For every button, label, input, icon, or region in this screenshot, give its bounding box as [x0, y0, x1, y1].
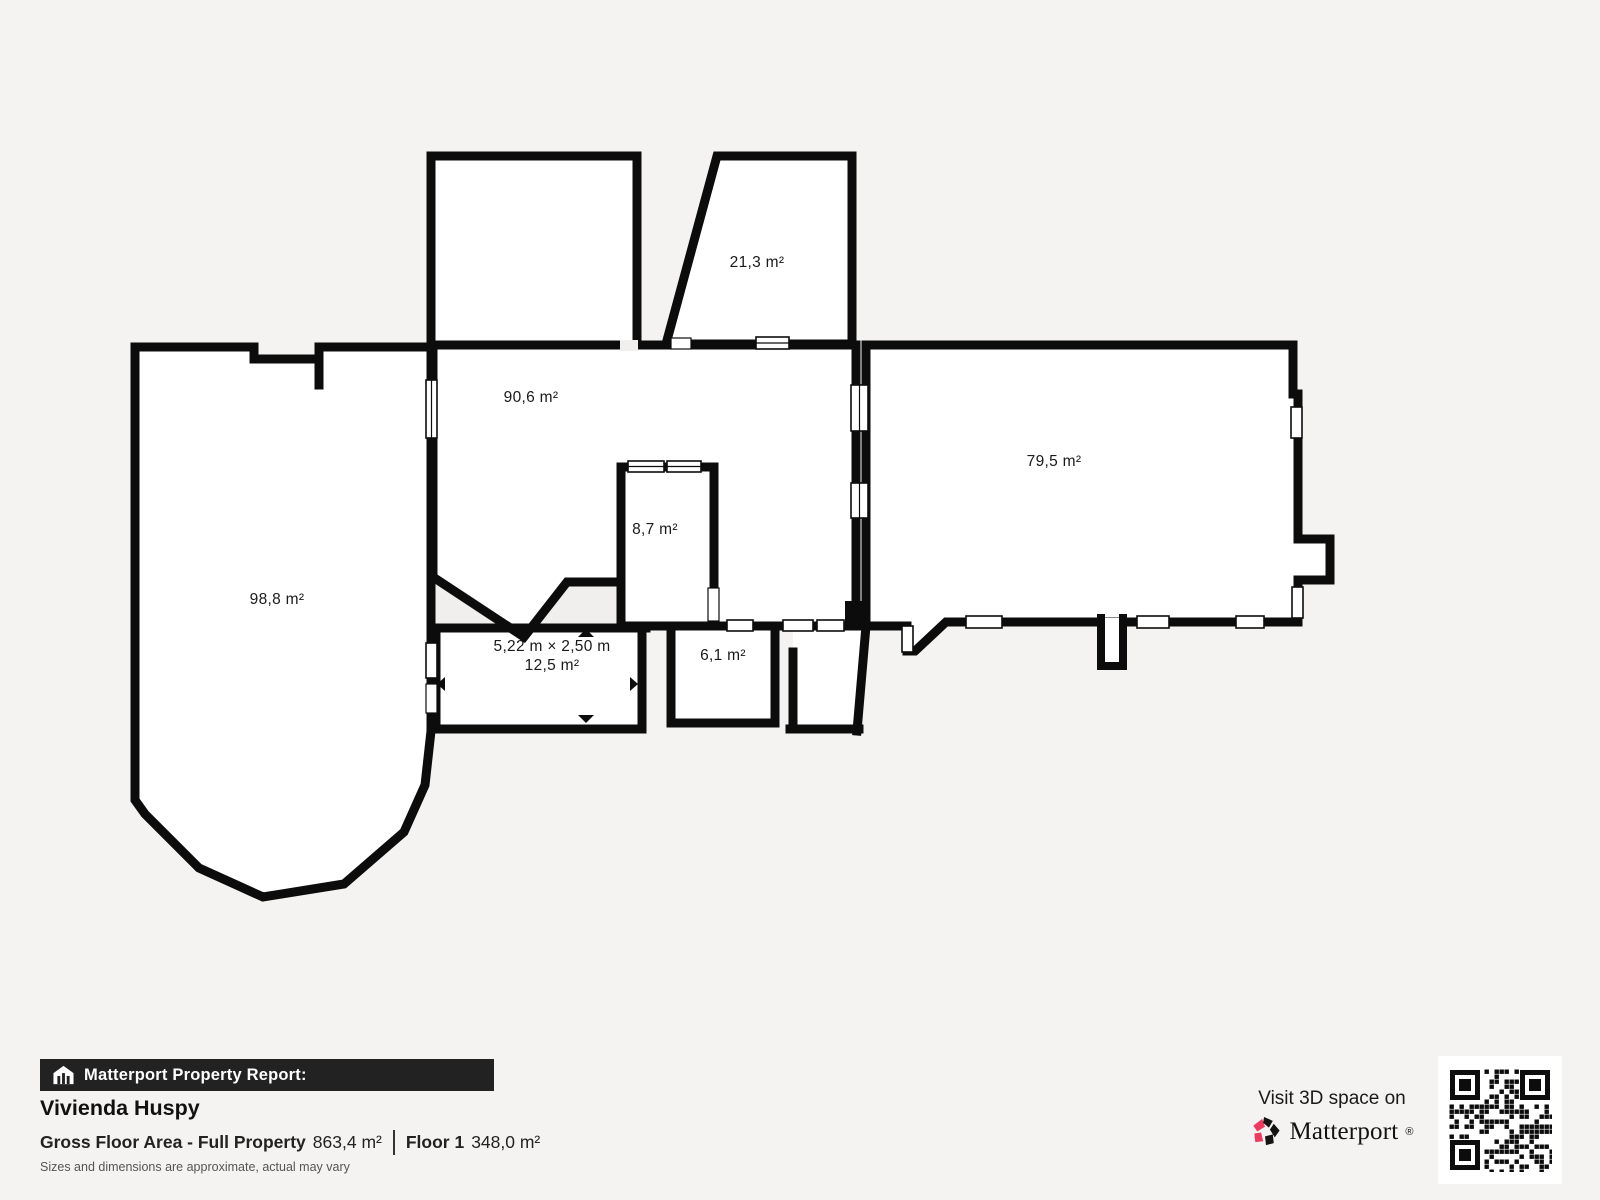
window-marker	[1137, 616, 1169, 628]
visit-3d-cta: Visit 3D space on Matterport®	[1232, 1088, 1432, 1148]
qr-code	[1438, 1056, 1562, 1184]
window-marker	[783, 620, 813, 631]
room-area-label: 6,1 m²	[700, 647, 746, 664]
window-marker	[902, 626, 913, 652]
property-report-page: 21,3 m² 90,6 m² 98,8 m² 8,7 m² 79,5 m² 6…	[0, 0, 1600, 1200]
door-marker	[708, 588, 719, 621]
room-stair-fill	[431, 156, 637, 345]
window-marker	[1291, 407, 1302, 438]
window-marker	[1292, 587, 1303, 618]
room-79-fill	[866, 345, 1330, 651]
window-marker	[1236, 616, 1264, 628]
banner-label: Matterport Property Report:	[84, 1066, 307, 1085]
disclaimer-text: Sizes and dimensions are approximate, ac…	[40, 1160, 350, 1174]
matterport-logo-icon	[1250, 1115, 1282, 1148]
room-area-label: 79,5 m²	[1027, 453, 1082, 470]
room-6-fill	[671, 626, 775, 724]
divider	[393, 1130, 395, 1155]
trademark-symbol: ®	[1405, 1126, 1413, 1138]
door-marker	[426, 684, 437, 713]
area-stats: Gross Floor Area - Full Property 863,4 m…	[40, 1130, 540, 1155]
niche	[1099, 618, 1125, 666]
floor-value: 348,0 m²	[471, 1132, 540, 1153]
window-marker	[727, 620, 753, 631]
report-banner: Matterport Property Report:	[40, 1059, 494, 1091]
matterport-wordmark: Matterport	[1289, 1118, 1398, 1146]
room-area-label: 98,8 m²	[250, 591, 305, 608]
room-area-label: 12,5 m²	[525, 657, 580, 674]
window-marker	[426, 643, 437, 678]
floor-label: Floor 1	[406, 1132, 464, 1153]
gfa-value: 863,4 m²	[313, 1132, 382, 1153]
window-marker	[817, 620, 844, 631]
lobby-fill	[793, 631, 864, 727]
room-98-fill	[135, 347, 431, 897]
wall-openings	[620, 340, 638, 351]
matterport-brand: Matterport®	[1232, 1115, 1432, 1148]
room-area-label: 8,7 m²	[632, 521, 678, 538]
visit-label: Visit 3D space on	[1232, 1088, 1432, 1110]
gfa-label: Gross Floor Area - Full Property	[40, 1132, 306, 1153]
floor-plan: 21,3 m² 90,6 m² 98,8 m² 8,7 m² 79,5 m² 6…	[0, 0, 1600, 1200]
room-area-label: 21,3 m²	[730, 254, 785, 271]
window-marker	[966, 616, 1002, 628]
room-area-label: 90,6 m²	[504, 389, 559, 406]
property-name: Vivienda Huspy	[40, 1096, 200, 1121]
room-dimension-label: 5,22 m × 2,50 m	[494, 638, 611, 655]
door-marker	[671, 338, 691, 349]
property-report-icon	[53, 1065, 74, 1085]
room-90-fill	[433, 345, 856, 626]
